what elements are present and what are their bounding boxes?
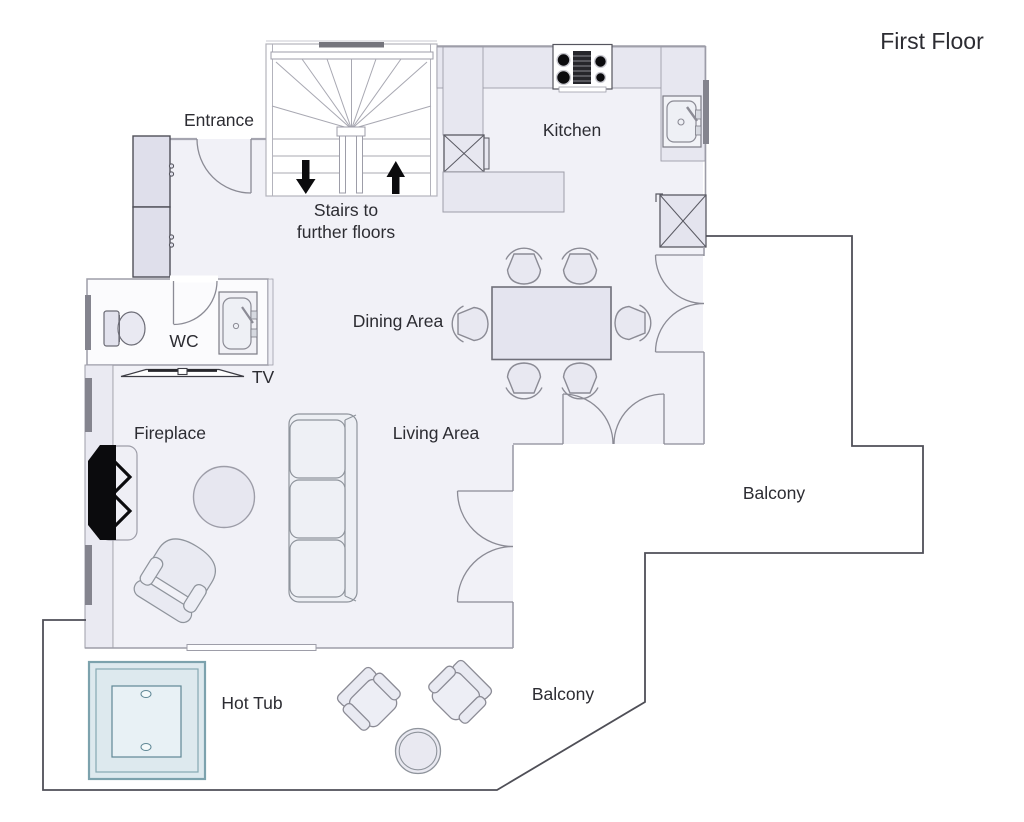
svg-text:Kitchen: Kitchen [543, 120, 601, 140]
svg-text:Balcony: Balcony [532, 684, 595, 704]
svg-text:further floors: further floors [297, 222, 395, 242]
svg-text:Hot Tub: Hot Tub [221, 693, 282, 713]
svg-text:Balcony: Balcony [743, 483, 806, 503]
svg-text:Fireplace: Fireplace [134, 423, 206, 443]
svg-text:Entrance: Entrance [184, 110, 254, 130]
svg-text:TV: TV [252, 367, 275, 387]
svg-text:Living Area: Living Area [393, 423, 480, 443]
svg-text:Stairs to: Stairs to [314, 200, 378, 220]
svg-text:Dining Area: Dining Area [353, 311, 444, 331]
svg-text:First Floor: First Floor [880, 28, 984, 54]
svg-text:WC: WC [169, 331, 198, 351]
